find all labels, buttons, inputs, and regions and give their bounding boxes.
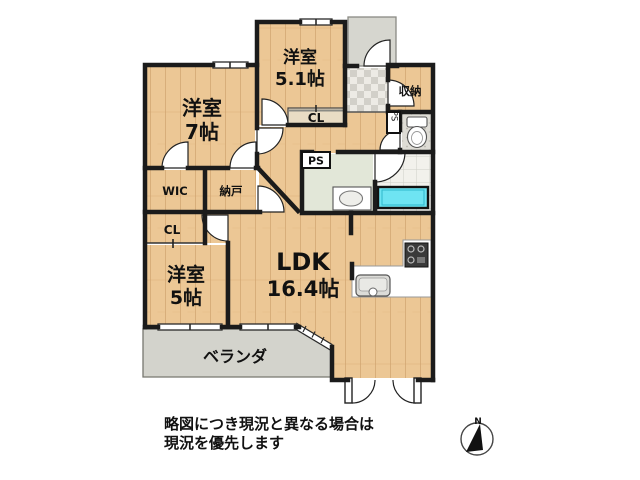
label-closet-upper: CL [308, 111, 325, 125]
bathtub-icon [378, 187, 428, 208]
toilet-icon [407, 117, 427, 148]
label-wic: WIC [162, 184, 187, 198]
genkan-tile [347, 68, 388, 112]
label-ldk-line2: 16.4帖 [267, 277, 340, 301]
floor-plan-drawing: 洋室 5.1帖 洋室 7帖 収納 CL PS WIC 納戸 CL PS 洋室 5… [0, 0, 640, 480]
compass-north-label: N [474, 417, 482, 427]
label-western-room-5-line2: 5帖 [170, 286, 202, 309]
label-pipe-space-toilet: PS [389, 111, 399, 122]
disclaimer-line2: 現況を優先します [164, 434, 284, 452]
label-closet-lower: CL [164, 223, 181, 237]
ldk-french-doors [345, 378, 421, 403]
disclaimer-line1: 略図につき現況と異なる場合は [164, 415, 374, 433]
label-pipe-space-washroom: PS [308, 155, 324, 168]
stove-icon [405, 243, 428, 267]
disclaimer-note: 略図につき現況と異なる場合は 現況を優先します [164, 415, 374, 452]
label-ldk-line1: LDK [276, 248, 331, 276]
label-veranda: ベランダ [203, 347, 267, 366]
sink-icon [356, 275, 390, 296]
vanity-icon [333, 187, 371, 210]
floorplan-page: { "floorplan": { "rooms": { "western_roo… [0, 0, 640, 480]
compass-icon: N [461, 417, 493, 455]
label-western-room-7-line2: 7帖 [185, 120, 219, 144]
label-storage: 収納 [399, 84, 422, 98]
label-western-room-51-line2: 5.1帖 [275, 68, 325, 90]
label-western-room-51-line1: 洋室 [283, 47, 317, 68]
label-western-room-5-line1: 洋室 [167, 263, 205, 286]
label-storeroom: 納戸 [220, 184, 243, 198]
label-western-room-7-line1: 洋室 [182, 96, 222, 120]
